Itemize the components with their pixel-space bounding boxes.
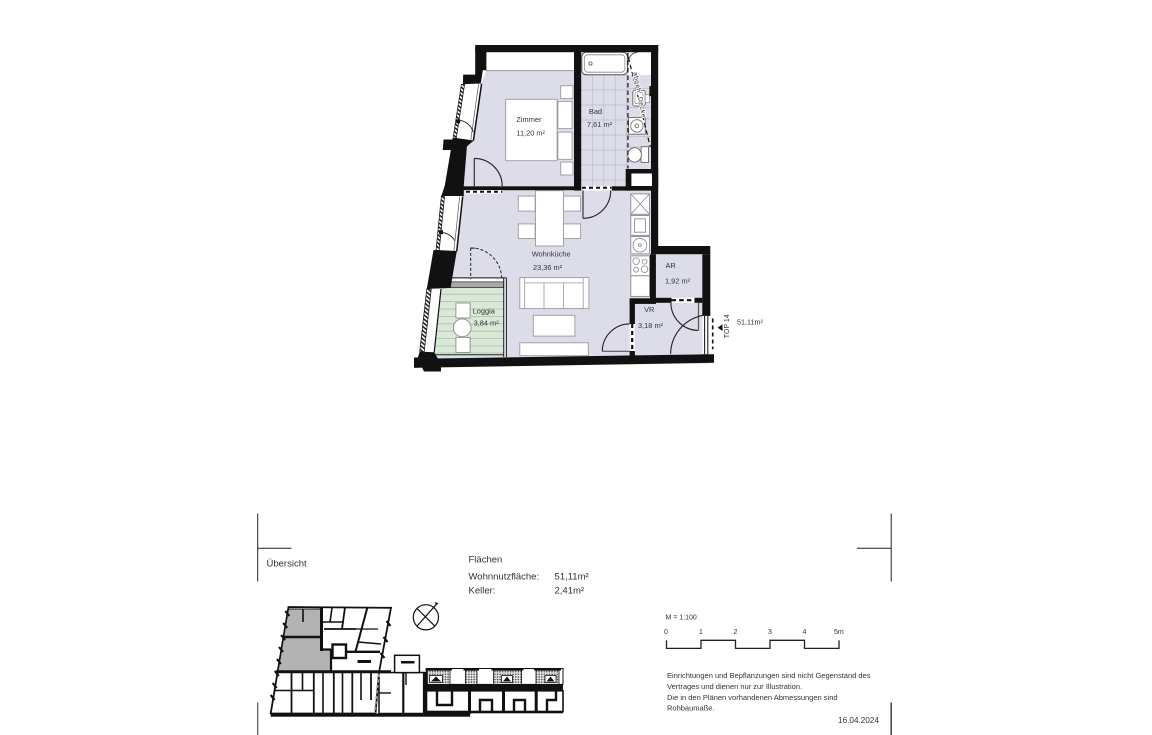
svg-text:1,92 m²: 1,92 m² <box>665 277 691 286</box>
svg-text:16.04.2024: 16.04.2024 <box>838 716 879 725</box>
svg-text:11,20 m²: 11,20 m² <box>516 129 545 138</box>
svg-text:0: 0 <box>664 629 668 636</box>
svg-text:51,11m²: 51,11m² <box>737 318 763 327</box>
svg-text:3,18 m²: 3,18 m² <box>638 321 664 330</box>
svg-text:Vertrages und dienen nur zur I: Vertrages und dienen nur zur Illustratio… <box>667 682 802 691</box>
svg-text:Die in den Plänen vorhandenen: Die in den Plänen vorhandenen Abmessunge… <box>667 693 838 702</box>
svg-text:Loggia: Loggia <box>473 307 496 316</box>
svg-text:Flächen: Flächen <box>469 555 503 566</box>
svg-text:1: 1 <box>699 629 703 636</box>
svg-text:Wohnküche: Wohnküche <box>532 249 571 258</box>
svg-text:VR: VR <box>644 305 654 314</box>
svg-text:Rohbaumaße.: Rohbaumaße. <box>667 704 715 713</box>
svg-text:4: 4 <box>803 629 807 636</box>
svg-text:2,41m²: 2,41m² <box>555 586 585 597</box>
svg-text:51,11m²: 51,11m² <box>555 572 589 583</box>
svg-text:AR: AR <box>666 261 676 270</box>
svg-text:5m: 5m <box>834 629 844 636</box>
svg-text:TOP 14: TOP 14 <box>724 314 731 338</box>
svg-text:2: 2 <box>734 629 738 636</box>
svg-text:23,36 m²: 23,36 m² <box>533 263 563 272</box>
svg-text:Bad: Bad <box>589 107 602 116</box>
svg-text:Keller:: Keller: <box>469 586 496 597</box>
svg-text:Zimmer: Zimmer <box>516 115 542 124</box>
svg-text:Wohnnutzfläche:: Wohnnutzfläche: <box>469 572 540 583</box>
svg-text:M = 1:100: M = 1:100 <box>666 615 697 622</box>
svg-text:Übersicht: Übersicht <box>267 559 307 570</box>
svg-text:3: 3 <box>768 629 772 636</box>
svg-text:Einrichtungen und Bepflanzunge: Einrichtungen und Bepflanzungen sind nic… <box>667 671 871 680</box>
svg-text:3,84 m²: 3,84 m² <box>474 319 500 328</box>
svg-text:7,61 m²: 7,61 m² <box>587 120 613 129</box>
